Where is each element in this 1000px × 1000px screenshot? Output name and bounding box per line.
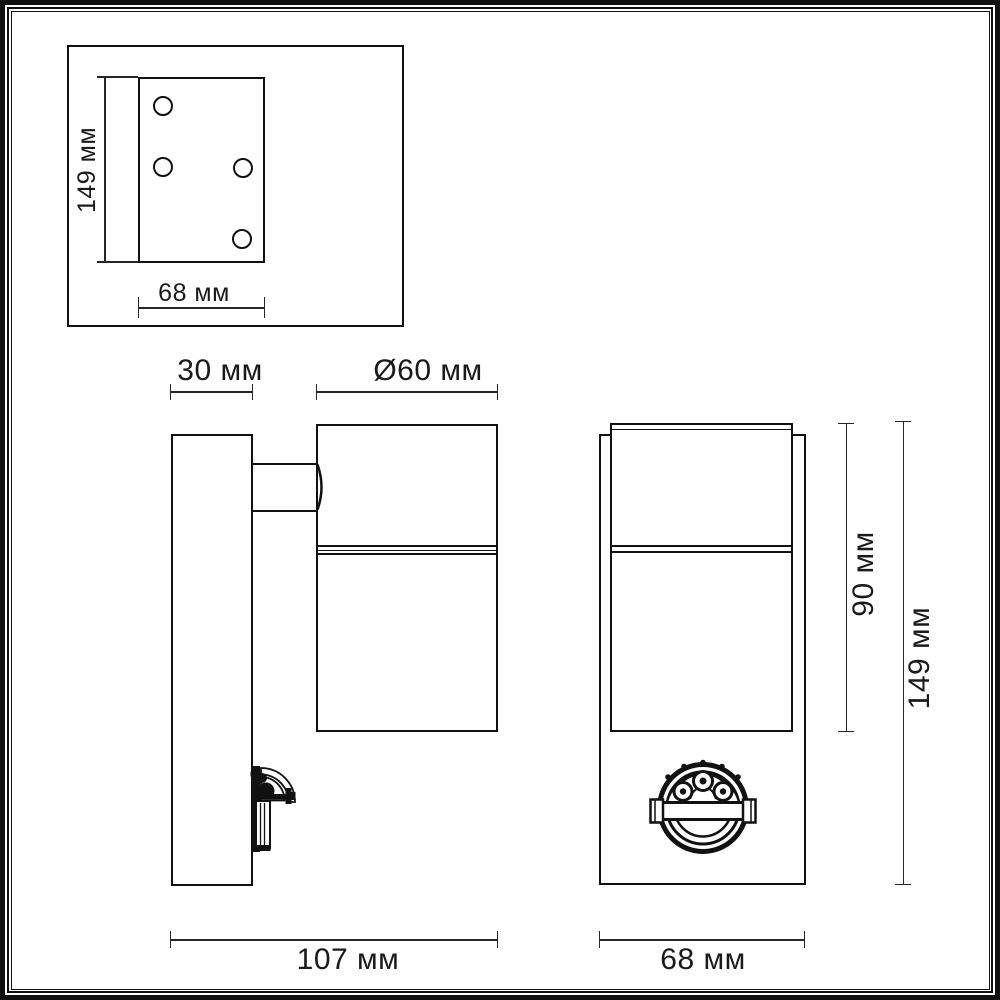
- drawing-details-layer: [0, 0, 1000, 1000]
- dimension-drawing-canvas: 149 мм 68 мм 30 мм Ø60 мм 107 мм 90 мм 1…: [0, 0, 1000, 1000]
- side-view-arm-cap-arc: [318, 465, 322, 510]
- motion-sensor-side: [251, 766, 296, 852]
- motion-sensor-front: [651, 760, 756, 852]
